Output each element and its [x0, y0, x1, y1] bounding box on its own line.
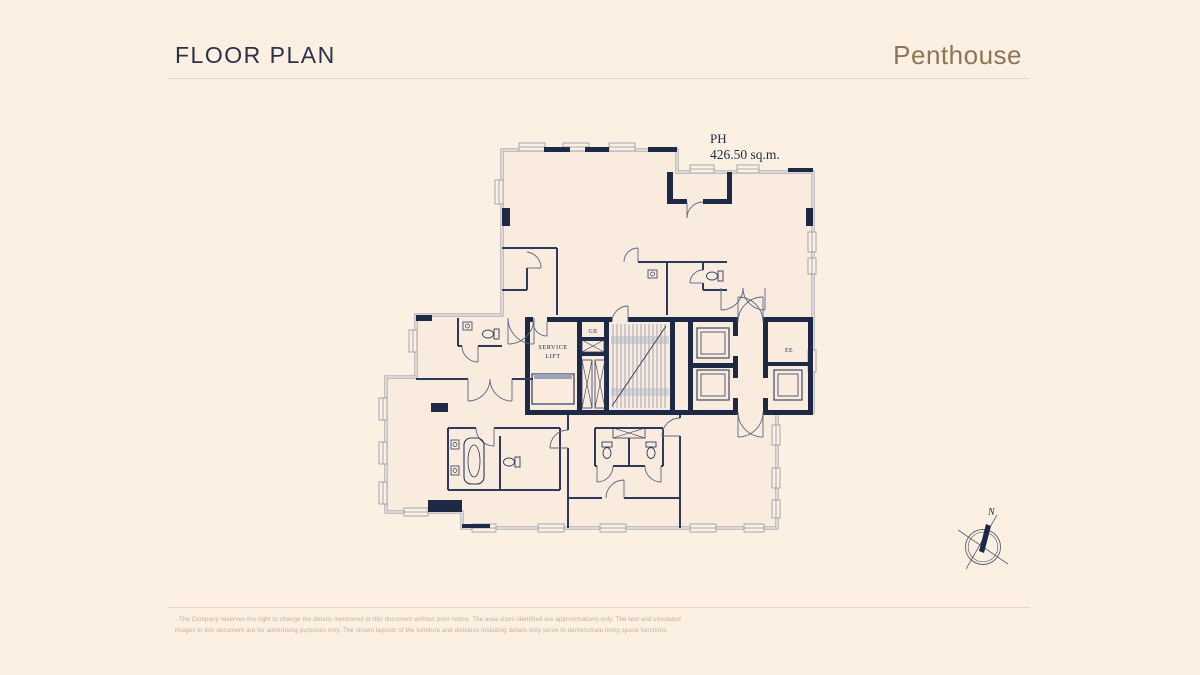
gb-label: GB	[588, 329, 597, 335]
disclaimer-line-2: images in this document are for advertis…	[175, 626, 681, 637]
footer-divider	[168, 607, 1030, 608]
service-lift-label-2: LIFT	[545, 353, 560, 360]
disclaimer-line-1: - The Company reserves the right to chan…	[175, 615, 681, 626]
service-lift-label-1: SERVICE	[538, 344, 567, 351]
ee-label: EE	[785, 348, 793, 354]
unit-callout: PH 426.50 sq.m.	[710, 131, 780, 162]
disclaimer-text: - The Company reserves the right to chan…	[175, 615, 681, 637]
compass-icon: N	[958, 507, 1008, 569]
unit-area: 426.50 sq.m.	[710, 147, 780, 162]
floor-plan-drawing: SERVICE LIFT GB EE PH 426.50 sq.m. N	[0, 0, 1200, 675]
north-label: N	[987, 507, 996, 518]
floor-plan-page: FLOOR PLAN Penthouse	[0, 0, 1200, 675]
unit-code: PH	[710, 131, 727, 146]
